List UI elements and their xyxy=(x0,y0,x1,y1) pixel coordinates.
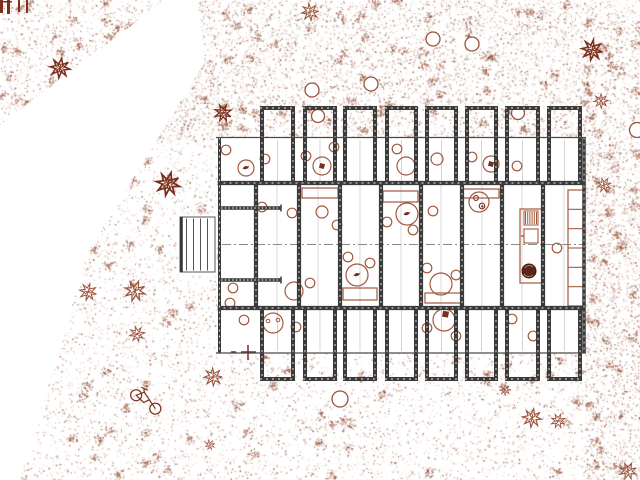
shrub-icon xyxy=(549,412,567,430)
table-symbol xyxy=(396,203,418,225)
site-plan-drawing xyxy=(0,0,640,480)
plot-edge-mark xyxy=(0,1,12,3)
chair-symbol xyxy=(382,217,392,227)
chair-symbol xyxy=(221,145,231,155)
table-symbol xyxy=(346,264,368,286)
shrub-icon xyxy=(500,385,511,396)
shrub-icon xyxy=(76,280,99,303)
shrub-icon xyxy=(617,460,640,480)
table-symbol xyxy=(469,192,489,212)
chair-symbol xyxy=(408,225,418,235)
tree-icon xyxy=(312,110,325,123)
tree-icon xyxy=(465,37,479,51)
plot-edge-mark xyxy=(26,0,28,13)
chair-symbol xyxy=(228,283,238,293)
bed-symbol xyxy=(383,191,418,202)
shrub-icon xyxy=(122,278,149,305)
tree-icon xyxy=(332,391,348,407)
plot-edge-mark xyxy=(18,0,20,12)
shrub-icon xyxy=(203,438,217,452)
chair-symbol xyxy=(512,161,522,171)
chair-symbol xyxy=(422,263,432,273)
shelf-symbol xyxy=(568,190,584,306)
table-symbol xyxy=(263,313,283,333)
shrub-icon xyxy=(578,36,607,65)
chair-symbol xyxy=(392,144,402,154)
chair-symbol xyxy=(239,315,249,325)
chair-symbol xyxy=(343,252,353,262)
tree-icon xyxy=(426,32,440,46)
shrub-icon xyxy=(212,102,234,124)
shrub-icon xyxy=(154,170,183,199)
chair-symbol xyxy=(451,270,461,280)
table-symbol xyxy=(238,160,254,176)
chair-symbol xyxy=(305,278,315,288)
tree-icon xyxy=(305,83,319,97)
tree-icon xyxy=(630,123,640,138)
shrub-icon xyxy=(594,175,614,195)
shrub-icon xyxy=(298,0,322,24)
table-symbol xyxy=(433,309,455,331)
table-symbol xyxy=(397,157,415,175)
entrance-deck xyxy=(180,217,215,272)
chair-symbol xyxy=(428,206,438,216)
potted-plant-symbol xyxy=(522,264,536,278)
floor-plan-svg xyxy=(0,0,640,480)
furniture-layer xyxy=(221,142,584,341)
shrub-icon xyxy=(49,57,72,80)
bed-symbol xyxy=(302,188,338,198)
bed-symbol xyxy=(463,189,499,198)
chair-symbol xyxy=(287,208,297,218)
table-symbol xyxy=(313,157,331,175)
bicycle-icon xyxy=(127,385,165,415)
shrub-icon xyxy=(521,407,543,429)
chair-symbol xyxy=(365,258,375,268)
shrub-icon xyxy=(200,364,225,389)
tree-icon xyxy=(364,77,378,91)
shrub-icon xyxy=(128,325,146,343)
shrub-icon xyxy=(594,94,608,108)
